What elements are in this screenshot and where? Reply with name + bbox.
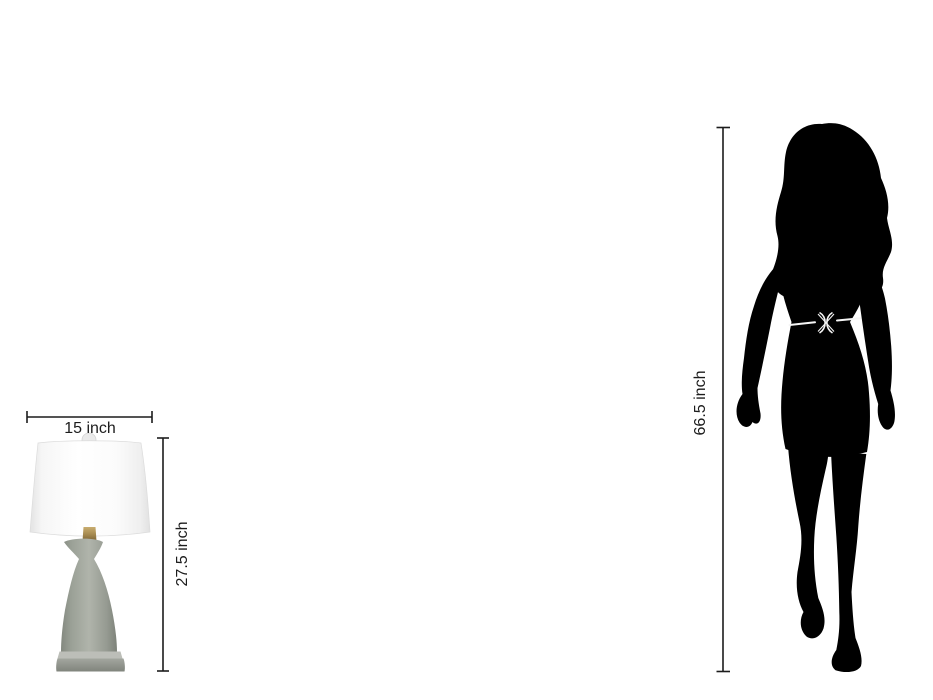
lamp-height-dimension-line — [157, 438, 169, 671]
lamp-base — [56, 652, 125, 672]
person-height-dimension-line — [717, 128, 731, 672]
lamp-body — [61, 539, 117, 652]
lamp-width-label: 15 inch — [64, 421, 116, 437]
silhouette-front-leg — [831, 452, 866, 672]
woman-silhouette — [737, 123, 895, 672]
silhouette-back-leg — [788, 446, 829, 638]
lamp-height-label: 27.5 inch — [175, 522, 191, 587]
scene-graphic — [0, 0, 933, 700]
silhouette-torso — [779, 254, 869, 457]
person-height-label: 66.5 inch — [693, 371, 709, 436]
lamp-illustration — [30, 433, 150, 672]
silhouette-left-arm — [737, 263, 781, 427]
lamp-shade — [30, 441, 150, 536]
size-comparison-canvas: 15 inch 27.5 inch 66.5 inch — [0, 0, 933, 700]
